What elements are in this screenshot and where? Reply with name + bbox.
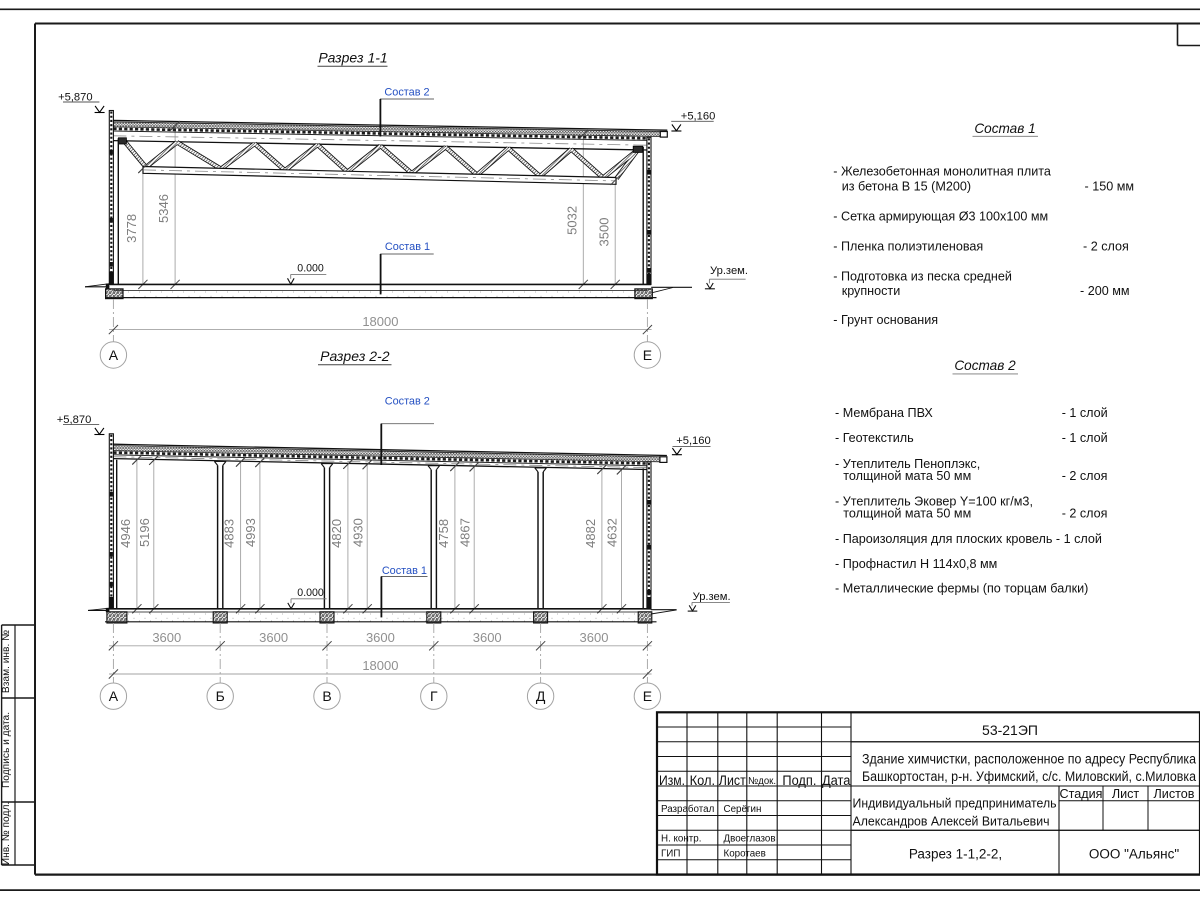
- svg-text:В: В: [322, 688, 331, 704]
- svg-text:Состав 2: Состав 2: [385, 396, 430, 408]
- svg-text:4867: 4867: [457, 518, 472, 547]
- svg-text:+5,870: +5,870: [58, 91, 93, 103]
- svg-text:ГИП: ГИП: [661, 848, 680, 859]
- svg-text:18000: 18000: [362, 314, 398, 329]
- svg-text:- Профнастил Н 114х0,8 мм: - Профнастил Н 114х0,8 мм: [835, 557, 997, 571]
- svg-text:4820: 4820: [329, 519, 344, 548]
- svg-text:- Геотекстиль: - Геотекстиль: [835, 431, 914, 445]
- svg-text:3778: 3778: [124, 214, 139, 243]
- svg-text:А: А: [109, 688, 119, 704]
- svg-text:- Грунт основания: - Грунт основания: [833, 313, 938, 327]
- svg-text:Лист: Лист: [719, 773, 746, 788]
- svg-text:Н. контр.: Н. контр.: [661, 834, 701, 845]
- svg-text:+5,870: +5,870: [57, 414, 92, 426]
- svg-text:Листов: Листов: [1154, 787, 1195, 801]
- svg-text:Изм.: Изм.: [659, 773, 685, 788]
- svg-text:- 2 слоя: - 2 слоя: [1062, 506, 1108, 520]
- svg-text:Двоеглазов: Двоеглазов: [724, 834, 776, 845]
- svg-text:из бетона В 15 (М200): из бетона В 15 (М200): [842, 180, 971, 194]
- svg-text:Состав 1: Состав 1: [974, 121, 1035, 136]
- svg-text:- Мембрана ПВХ: - Мембрана ПВХ: [835, 406, 933, 420]
- svg-text:Инв. № подл.: Инв. № подл.: [1, 802, 12, 865]
- svg-text:0.000: 0.000: [297, 587, 324, 599]
- svg-text:Б: Б: [216, 688, 225, 704]
- svg-text:Башкортостан, р-н. Уфимский, с: Башкортостан, р-н. Уфимский, с/с. Миловс…: [862, 769, 1197, 784]
- svg-text:3600: 3600: [259, 630, 288, 645]
- svg-text:- 150 мм: - 150 мм: [1085, 180, 1135, 194]
- svg-text:Состав 2: Состав 2: [384, 86, 429, 98]
- svg-text:Разработал: Разработал: [661, 804, 715, 815]
- svg-text:- Пленка полиэтиленовая: - Пленка полиэтиленовая: [833, 240, 983, 254]
- svg-text:- Подготовка из песка средней: - Подготовка из песка средней: [833, 270, 1012, 284]
- svg-text:- 2 слоя: - 2 слоя: [1062, 469, 1108, 483]
- svg-text:+5,160: +5,160: [681, 110, 716, 122]
- svg-text:4930: 4930: [350, 518, 365, 547]
- svg-text:№док.: №док.: [748, 776, 776, 787]
- svg-text:5196: 5196: [137, 518, 152, 547]
- svg-text:Состав 1: Состав 1: [382, 565, 427, 577]
- svg-text:5346: 5346: [156, 194, 171, 223]
- svg-text:- 1 слой: - 1 слой: [1062, 406, 1108, 420]
- svg-text:3600: 3600: [366, 630, 395, 645]
- svg-text:Разрез 2-2: Разрез 2-2: [320, 348, 390, 364]
- svg-text:Разрез 1-1: Разрез 1-1: [318, 49, 387, 65]
- svg-text:Е: Е: [643, 347, 652, 363]
- svg-text:Ур.зем.: Ур.зем.: [693, 591, 731, 603]
- svg-text:0.000: 0.000: [297, 262, 324, 274]
- svg-text:Е: Е: [643, 688, 652, 704]
- svg-text:Лист: Лист: [1112, 787, 1140, 801]
- svg-text:- Железобетонная монолитная п: - Железобетонная монолитная плита: [833, 165, 1051, 179]
- svg-text:5032: 5032: [565, 206, 580, 235]
- svg-text:- Пароизоляция для плоских кро: - Пароизоляция для плоских кровель - 1 с…: [835, 532, 1102, 546]
- svg-text:Состав 2: Состав 2: [954, 358, 1016, 373]
- svg-text:4993: 4993: [243, 518, 258, 547]
- svg-text:Подп.: Подп.: [782, 773, 816, 788]
- svg-text:ООО "Альянс": ООО "Альянс": [1089, 847, 1179, 862]
- svg-text:- 2 слоя: - 2 слоя: [1083, 240, 1129, 254]
- svg-text:3600: 3600: [580, 630, 609, 645]
- svg-text:53-21ЭП: 53-21ЭП: [982, 722, 1038, 738]
- svg-text:Здание химчистки, расположенн: Здание химчистки, расположенное по адрес…: [862, 751, 1197, 766]
- svg-text:Взам. инв. №: Взам. инв. №: [1, 630, 12, 693]
- svg-text:- Металлические фермы (по торц: - Металлические фермы (по торцам балки): [835, 581, 1088, 595]
- svg-text:толщиной мата 50 мм: толщиной мата 50 мм: [843, 506, 971, 520]
- svg-text:4883: 4883: [222, 519, 237, 548]
- svg-text:Серёгин: Серёгин: [724, 804, 762, 815]
- svg-text:толщиной мата 50 мм: толщиной мата 50 мм: [843, 469, 971, 483]
- svg-text:18000: 18000: [362, 658, 398, 673]
- svg-text:Разрез 1-1,2-2,: Разрез 1-1,2-2,: [909, 847, 1002, 862]
- svg-text:3600: 3600: [152, 630, 181, 645]
- svg-text:4632: 4632: [605, 518, 620, 547]
- svg-text:- 200 мм: - 200 мм: [1080, 284, 1130, 298]
- svg-text:Д: Д: [536, 688, 546, 704]
- svg-text:4882: 4882: [583, 519, 598, 548]
- svg-text:А: А: [109, 347, 119, 363]
- svg-text:Состав 1: Состав 1: [385, 241, 430, 253]
- svg-text:Ур.зем.: Ур.зем.: [710, 265, 748, 277]
- svg-text:4946: 4946: [118, 519, 133, 548]
- svg-text:+5,160: +5,160: [676, 435, 711, 447]
- svg-text:Кол.: Кол.: [690, 773, 716, 788]
- svg-text:Стадия: Стадия: [1060, 787, 1103, 801]
- svg-text:4758: 4758: [436, 519, 451, 548]
- svg-text:Коротаев: Коротаев: [724, 848, 766, 859]
- svg-text:3600: 3600: [473, 630, 502, 645]
- svg-text:- 1 слой: - 1 слой: [1062, 431, 1108, 445]
- svg-text:3500: 3500: [596, 218, 611, 247]
- svg-text:Индивидуальный предприниматель: Индивидуальный предприниматель: [853, 796, 1057, 810]
- svg-text:Александров Алексей Витальевич: Александров Алексей Витальевич: [853, 814, 1050, 828]
- svg-text:Г: Г: [430, 688, 438, 704]
- svg-text:- Сетка армирующая Ø3 100х100: - Сетка армирующая Ø3 100х100 мм: [833, 210, 1048, 224]
- svg-text:крупности: крупности: [842, 284, 901, 298]
- svg-text:Подпись и дата.: Подпись и дата.: [1, 712, 12, 788]
- svg-text:Дата: Дата: [822, 773, 851, 788]
